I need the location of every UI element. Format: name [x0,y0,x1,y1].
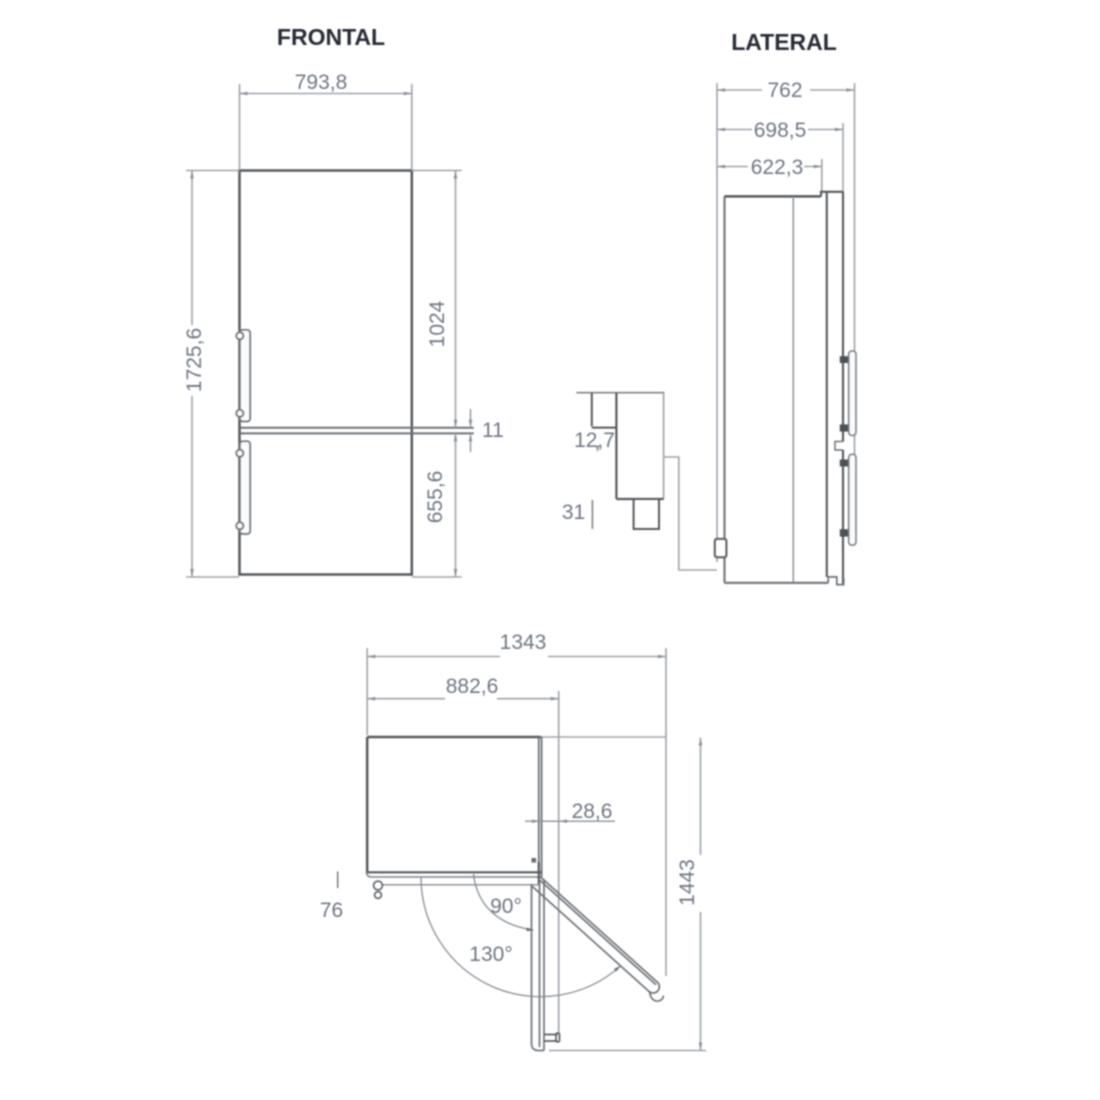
svg-text:FRONTAL: FRONTAL [277,24,385,50]
svg-text:LATERAL: LATERAL [731,29,837,55]
svg-text:793,8: 793,8 [295,71,348,94]
svg-text:90°: 90° [490,895,522,918]
svg-text:28,6: 28,6 [572,800,613,823]
svg-text:12,7: 12,7 [574,429,615,452]
svg-text:76: 76 [320,899,343,922]
svg-text:762: 762 [767,79,802,102]
svg-text:1725,6: 1725,6 [183,328,206,392]
svg-text:622,3: 622,3 [751,156,804,179]
svg-text:698,5: 698,5 [754,119,807,142]
svg-text:1024: 1024 [426,300,449,347]
svg-text:1343: 1343 [500,631,547,654]
svg-text:130°: 130° [469,943,512,966]
svg-text:655,6: 655,6 [424,471,447,524]
svg-text:1443: 1443 [676,859,699,906]
svg-text:11: 11 [482,419,504,442]
svg-text:882,6: 882,6 [446,675,499,698]
svg-text:31: 31 [562,501,585,524]
